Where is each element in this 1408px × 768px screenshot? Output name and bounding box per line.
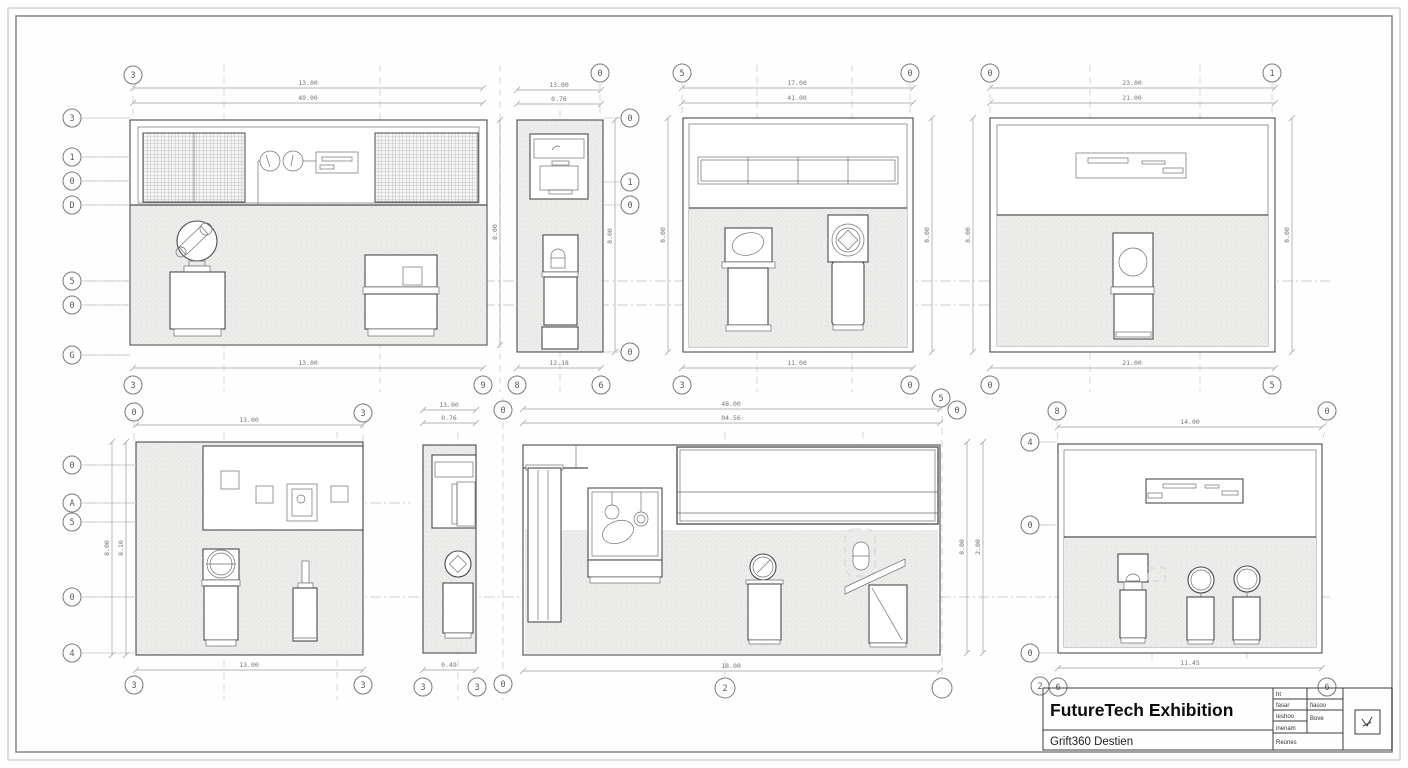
- dim-text: 13.00: [298, 79, 318, 87]
- pedestal-base: [1188, 640, 1213, 644]
- svg-text:0: 0: [987, 69, 992, 79]
- case-counter: [363, 287, 439, 294]
- svg-text:3: 3: [360, 681, 365, 691]
- pedestal-right: [869, 585, 907, 643]
- grid-bubble: 1: [604, 173, 639, 191]
- monitor: [540, 166, 578, 190]
- grid-bubble: 0: [125, 403, 143, 442]
- exhibit-block: [551, 258, 565, 268]
- dim-text: 14.00: [1180, 418, 1200, 426]
- dim-text: 11.45: [1180, 659, 1200, 667]
- grid-bubble: 0: [494, 401, 512, 419]
- dim-g-right1: 8.00: [958, 439, 970, 656]
- dim-a-bottom: 13.00: [130, 359, 486, 371]
- svg-text:A: A: [69, 499, 74, 509]
- svg-text:2: 2: [722, 684, 727, 694]
- grid-bubble: 9: [474, 376, 492, 394]
- grid-bubble: 5: [1263, 376, 1281, 394]
- grid-bubble: 0: [591, 64, 609, 120]
- medallion: [445, 551, 471, 577]
- dim-h-bottom: 11.45: [1055, 659, 1325, 671]
- svg-text:3: 3: [420, 683, 425, 693]
- grid-bubble: 3: [673, 376, 691, 394]
- dim-g-right2: 2.00: [974, 439, 986, 656]
- svg-text:5: 5: [69, 277, 74, 287]
- grid-bubble: 0: [1318, 402, 1336, 444]
- exhibit-orb: [605, 505, 619, 519]
- dim-text: 8.00: [1283, 227, 1291, 243]
- grid-bubble: 0: [981, 64, 999, 118]
- art-frame: [256, 486, 273, 503]
- info-cell: fasar: [1276, 703, 1289, 709]
- svg-text:0: 0: [987, 381, 992, 391]
- robot-stand-cap: [184, 266, 210, 272]
- grid-bubble: 0: [604, 343, 639, 361]
- dim-f-top2: 0.76: [420, 414, 479, 426]
- grid-bubble: 1: [63, 148, 130, 166]
- grid-bubble: 0: [604, 109, 639, 127]
- svg-text:0: 0: [131, 408, 136, 418]
- grid-bubble: 0: [63, 296, 130, 314]
- pedestal: [443, 583, 473, 633]
- grid-bubble: 3: [468, 678, 486, 696]
- dim-text: 13.00: [549, 81, 569, 89]
- svg-text:0: 0: [627, 348, 632, 358]
- globe-exhibit: [1119, 248, 1147, 276]
- bottle-pedestal: [293, 588, 317, 641]
- case-body: [728, 268, 768, 325]
- svg-text:5: 5: [1269, 381, 1274, 391]
- signage-panel: [1076, 153, 1186, 178]
- case-base: [542, 327, 578, 349]
- grid-bubble: 0: [1021, 644, 1058, 662]
- info-cell: Bove: [1310, 716, 1324, 722]
- panel-elevation-g: [523, 445, 940, 655]
- grid-bubble: 0: [63, 588, 136, 606]
- cad-canvas: 13.00 49.00 13.00 8.00 13.00 0.76 12.18 …: [0, 0, 1408, 768]
- dim-c-top2: 41.00: [679, 94, 916, 106]
- svg-text:0: 0: [1027, 649, 1032, 659]
- grid-bubble: 5: [63, 272, 130, 290]
- display-board: [287, 484, 317, 521]
- info-cell: fiasoo: [1310, 703, 1327, 709]
- grid-bubble: 4: [63, 644, 136, 662]
- dim-text: 04.56: [721, 414, 741, 422]
- grid-bubble: 0: [1021, 516, 1058, 534]
- svg-text:3: 3: [69, 114, 74, 124]
- dim-text: 8.00: [491, 224, 499, 240]
- dim-e-top: 13.00: [133, 416, 366, 428]
- gauge-dial: [283, 151, 303, 171]
- signage-chip: [1148, 493, 1162, 498]
- info-cell: Reones: [1276, 740, 1297, 746]
- side-screen: [457, 482, 475, 526]
- svg-text:0: 0: [954, 406, 959, 416]
- drawing-sheet: 13.00 49.00 13.00 8.00 13.00 0.76 12.18 …: [0, 0, 1408, 768]
- pedestal-base: [833, 325, 863, 330]
- case-counter: [722, 262, 775, 268]
- dim-d-bottom: 21.00: [987, 359, 1278, 371]
- dim-text: 48.00: [721, 400, 741, 408]
- header-bar: [435, 462, 473, 477]
- dim-text: 0.76: [551, 95, 567, 103]
- floor-area: [689, 209, 907, 347]
- art-frame: [331, 486, 348, 502]
- dim-f-top1: 13.00: [420, 401, 479, 413]
- grid-bubble: G: [63, 346, 130, 364]
- exhibit-cube: [403, 267, 422, 285]
- dim-text: 8.00: [606, 228, 614, 244]
- case-counter: [588, 560, 662, 577]
- dim-c-bottom: 11.00: [679, 359, 916, 371]
- case-neck: [1124, 582, 1142, 590]
- grid-bubble: 8: [508, 376, 526, 394]
- ring-exhibit: [1188, 567, 1214, 593]
- svg-text:0: 0: [627, 201, 632, 211]
- svg-text:0: 0: [69, 593, 74, 603]
- grid-bubble: 3: [125, 676, 143, 694]
- ring-exhibit-inner: [836, 228, 860, 252]
- svg-text:3: 3: [679, 381, 684, 391]
- title-block: FutureTech Exhibition Grift360 Destien h…: [1043, 688, 1392, 750]
- ring-exhibit: [1234, 566, 1260, 592]
- exhibit-ring-inner: [637, 515, 645, 523]
- case-base: [726, 325, 771, 331]
- pedestal: [1187, 597, 1214, 640]
- display-case: [1118, 554, 1148, 582]
- svg-text:5: 5: [679, 69, 684, 79]
- info-cell: inenam: [1276, 726, 1296, 732]
- dim-text: 8.00: [958, 539, 966, 555]
- grid-bubble: 0: [948, 401, 966, 419]
- case-base: [590, 577, 660, 583]
- dim-b-bottom: 12.18: [514, 359, 604, 371]
- pedestal: [832, 262, 864, 325]
- dim-text: 13.00: [239, 661, 259, 669]
- check-mark-stamp-icon: [1355, 710, 1380, 734]
- panel-elevation-b: [517, 120, 603, 352]
- svg-text:5: 5: [938, 394, 943, 404]
- dim-text: 8.00: [659, 227, 667, 243]
- grid-bubble: 5: [63, 513, 136, 531]
- panel-elevation-c: [683, 118, 913, 352]
- pedestal-base: [1234, 640, 1259, 644]
- grid-bubble: 3: [414, 678, 432, 696]
- grid-bubble: 6: [1318, 678, 1336, 696]
- pedestal-base: [445, 633, 471, 638]
- dim-e-left2: 8.10: [117, 439, 129, 658]
- dim-d-left: 8.00: [964, 115, 976, 355]
- case-body: [365, 294, 437, 329]
- svg-text:4: 4: [69, 649, 74, 659]
- dim-text: 0.76: [441, 414, 457, 422]
- grid-bubble: 0: [901, 376, 919, 394]
- case-counter: [542, 272, 578, 277]
- pedestal: [748, 584, 781, 640]
- dim-c-top1: 17.00: [679, 79, 916, 91]
- dim-text: 8.00: [964, 227, 972, 243]
- dim-text: 21.00: [1122, 359, 1142, 367]
- svg-text:0: 0: [907, 381, 912, 391]
- dim-text: 11.00: [787, 359, 807, 367]
- dim-g-top2: 04.56: [520, 414, 943, 426]
- grid-bubble: 3: [63, 109, 130, 127]
- dim-text: 2.00: [974, 539, 982, 555]
- dim-text: 8.10: [117, 540, 125, 556]
- svg-text:5: 5: [69, 518, 74, 528]
- dim-text: 13.00: [439, 401, 459, 409]
- grid-bubble: 2: [1031, 677, 1049, 695]
- svg-text:0: 0: [69, 177, 74, 187]
- pedestal-cap: [746, 580, 783, 584]
- svg-text:8: 8: [514, 381, 519, 391]
- dim-e-bottom: 13.00: [133, 661, 366, 673]
- grid-bubble: 0: [63, 456, 136, 474]
- svg-text:3: 3: [130, 381, 135, 391]
- pedestal-base: [749, 640, 780, 644]
- pedestal-base: [1121, 638, 1145, 643]
- dim-text: 23.00: [1122, 79, 1142, 87]
- dim-b-top1: 13.00: [514, 81, 604, 93]
- bottle-flange: [298, 583, 313, 588]
- svg-text:0: 0: [69, 461, 74, 471]
- svg-text:0: 0: [627, 114, 632, 124]
- grid-bubble: 3: [354, 404, 372, 442]
- dim-e-left1: 8.00: [103, 439, 115, 658]
- mesh-screen-right: [375, 133, 478, 202]
- svg-text:3: 3: [131, 681, 136, 691]
- display-case-top: [365, 255, 437, 287]
- grid-bubble: 3: [354, 676, 372, 694]
- svg-text:0: 0: [500, 406, 505, 416]
- case-counter: [1111, 287, 1154, 294]
- case-body: [204, 586, 238, 640]
- dim-text: 13.00: [298, 359, 318, 367]
- grid-bubble: 8: [1048, 402, 1066, 444]
- dim-a-top2: 49.00: [130, 94, 486, 106]
- grid-bubble: D: [63, 196, 130, 214]
- case-base: [368, 329, 434, 336]
- dim-text: 49.00: [298, 94, 318, 102]
- svg-text:1: 1: [627, 178, 632, 188]
- grid-bubble-blank: [932, 678, 952, 698]
- grid-bubble: A: [63, 494, 136, 512]
- gauge-dial: [260, 151, 280, 171]
- pedestal: [170, 272, 225, 329]
- art-frame: [221, 471, 239, 489]
- info-cell: ht: [1276, 692, 1281, 698]
- grid-bubble: 0: [494, 675, 512, 693]
- dim-text: 8.00: [923, 227, 931, 243]
- pedestal: [1120, 590, 1146, 638]
- svg-text:0: 0: [597, 69, 602, 79]
- svg-text:1: 1: [69, 153, 74, 163]
- panel-elevation-e: [136, 442, 363, 655]
- panel-elevation-h: [1058, 444, 1322, 653]
- dim-text: 13.00: [239, 416, 259, 424]
- dim-text: 17.00: [787, 79, 807, 87]
- svg-text:9: 9: [480, 381, 485, 391]
- svg-text:0: 0: [69, 301, 74, 311]
- grid-bubble: 0: [981, 376, 999, 394]
- pedestal-base: [870, 643, 906, 647]
- dim-a-right: 8.00: [491, 117, 503, 348]
- svg-text:3: 3: [474, 683, 479, 693]
- svg-text:0: 0: [1027, 521, 1032, 531]
- grid-bubble: 3: [124, 66, 142, 120]
- wall-column: [528, 468, 561, 622]
- grid-bubble: 4: [1021, 433, 1058, 451]
- dim-b-top2: 0.76: [514, 95, 604, 107]
- dim-text: 0.49: [441, 661, 457, 669]
- dim-a-top1: 13.00: [130, 79, 486, 91]
- panel-elevation-a: [130, 120, 487, 345]
- dim-b-right: 8.00: [606, 117, 618, 355]
- panel-elevation-f: [423, 445, 476, 653]
- control-box: [316, 152, 358, 173]
- pedestal-base: [174, 329, 221, 336]
- project-subtitle: Grift360 Destien: [1050, 736, 1133, 748]
- panel-elevation-d: [990, 118, 1275, 352]
- dim-g-top1: 48.00: [520, 400, 943, 412]
- grid-bubble: 3: [124, 376, 142, 394]
- svg-text:6: 6: [598, 381, 603, 391]
- dim-text: 12.18: [549, 359, 569, 367]
- grid-bubble: 6: [592, 376, 610, 394]
- case-base: [206, 640, 236, 646]
- svg-text:1: 1: [1269, 69, 1274, 79]
- dim-text: 8.00: [103, 540, 111, 556]
- dim-c-right: 8.00: [923, 115, 935, 355]
- grid-bubble: 5: [673, 64, 691, 118]
- grid-bubble: 0: [604, 196, 639, 214]
- dim-d-top2: 21.00: [987, 94, 1278, 106]
- dim-text: 18.00: [721, 662, 741, 670]
- svg-text:4: 4: [1027, 438, 1032, 448]
- bottle-neck: [302, 561, 309, 583]
- grid-bubble: 0: [63, 172, 130, 190]
- info-cell: teshoo: [1276, 714, 1295, 720]
- dim-text: 21.00: [1122, 94, 1142, 102]
- svg-text:2: 2: [1037, 682, 1042, 692]
- pedestal: [1233, 597, 1260, 640]
- svg-text:3: 3: [360, 409, 365, 419]
- case-body: [544, 277, 577, 325]
- svg-text:8: 8: [1054, 407, 1059, 417]
- dim-h-top: 14.00: [1055, 418, 1325, 430]
- dim-d-right: 8.00: [1283, 115, 1295, 355]
- dim-f-bottom: 0.49: [420, 661, 479, 673]
- svg-text:D: D: [69, 201, 74, 211]
- screen-panel: [534, 139, 584, 158]
- grid-bubble: 5: [932, 389, 950, 407]
- dim-text: 41.00: [787, 94, 807, 102]
- grid-bubble: 6: [1049, 678, 1067, 696]
- dim-g-bottom: 18.00: [520, 662, 943, 674]
- svg-text:0: 0: [907, 69, 912, 79]
- svg-text:0: 0: [1324, 407, 1329, 417]
- project-title: FutureTech Exhibition: [1050, 700, 1233, 720]
- case-counter: [202, 580, 240, 586]
- dim-d-top1: 23.00: [987, 79, 1278, 91]
- dim-c-left: 8.00: [659, 115, 671, 355]
- svg-text:G: G: [69, 351, 74, 361]
- grid-bubble: 2: [715, 678, 735, 698]
- svg-text:0: 0: [500, 680, 505, 690]
- svg-text:3: 3: [130, 71, 135, 81]
